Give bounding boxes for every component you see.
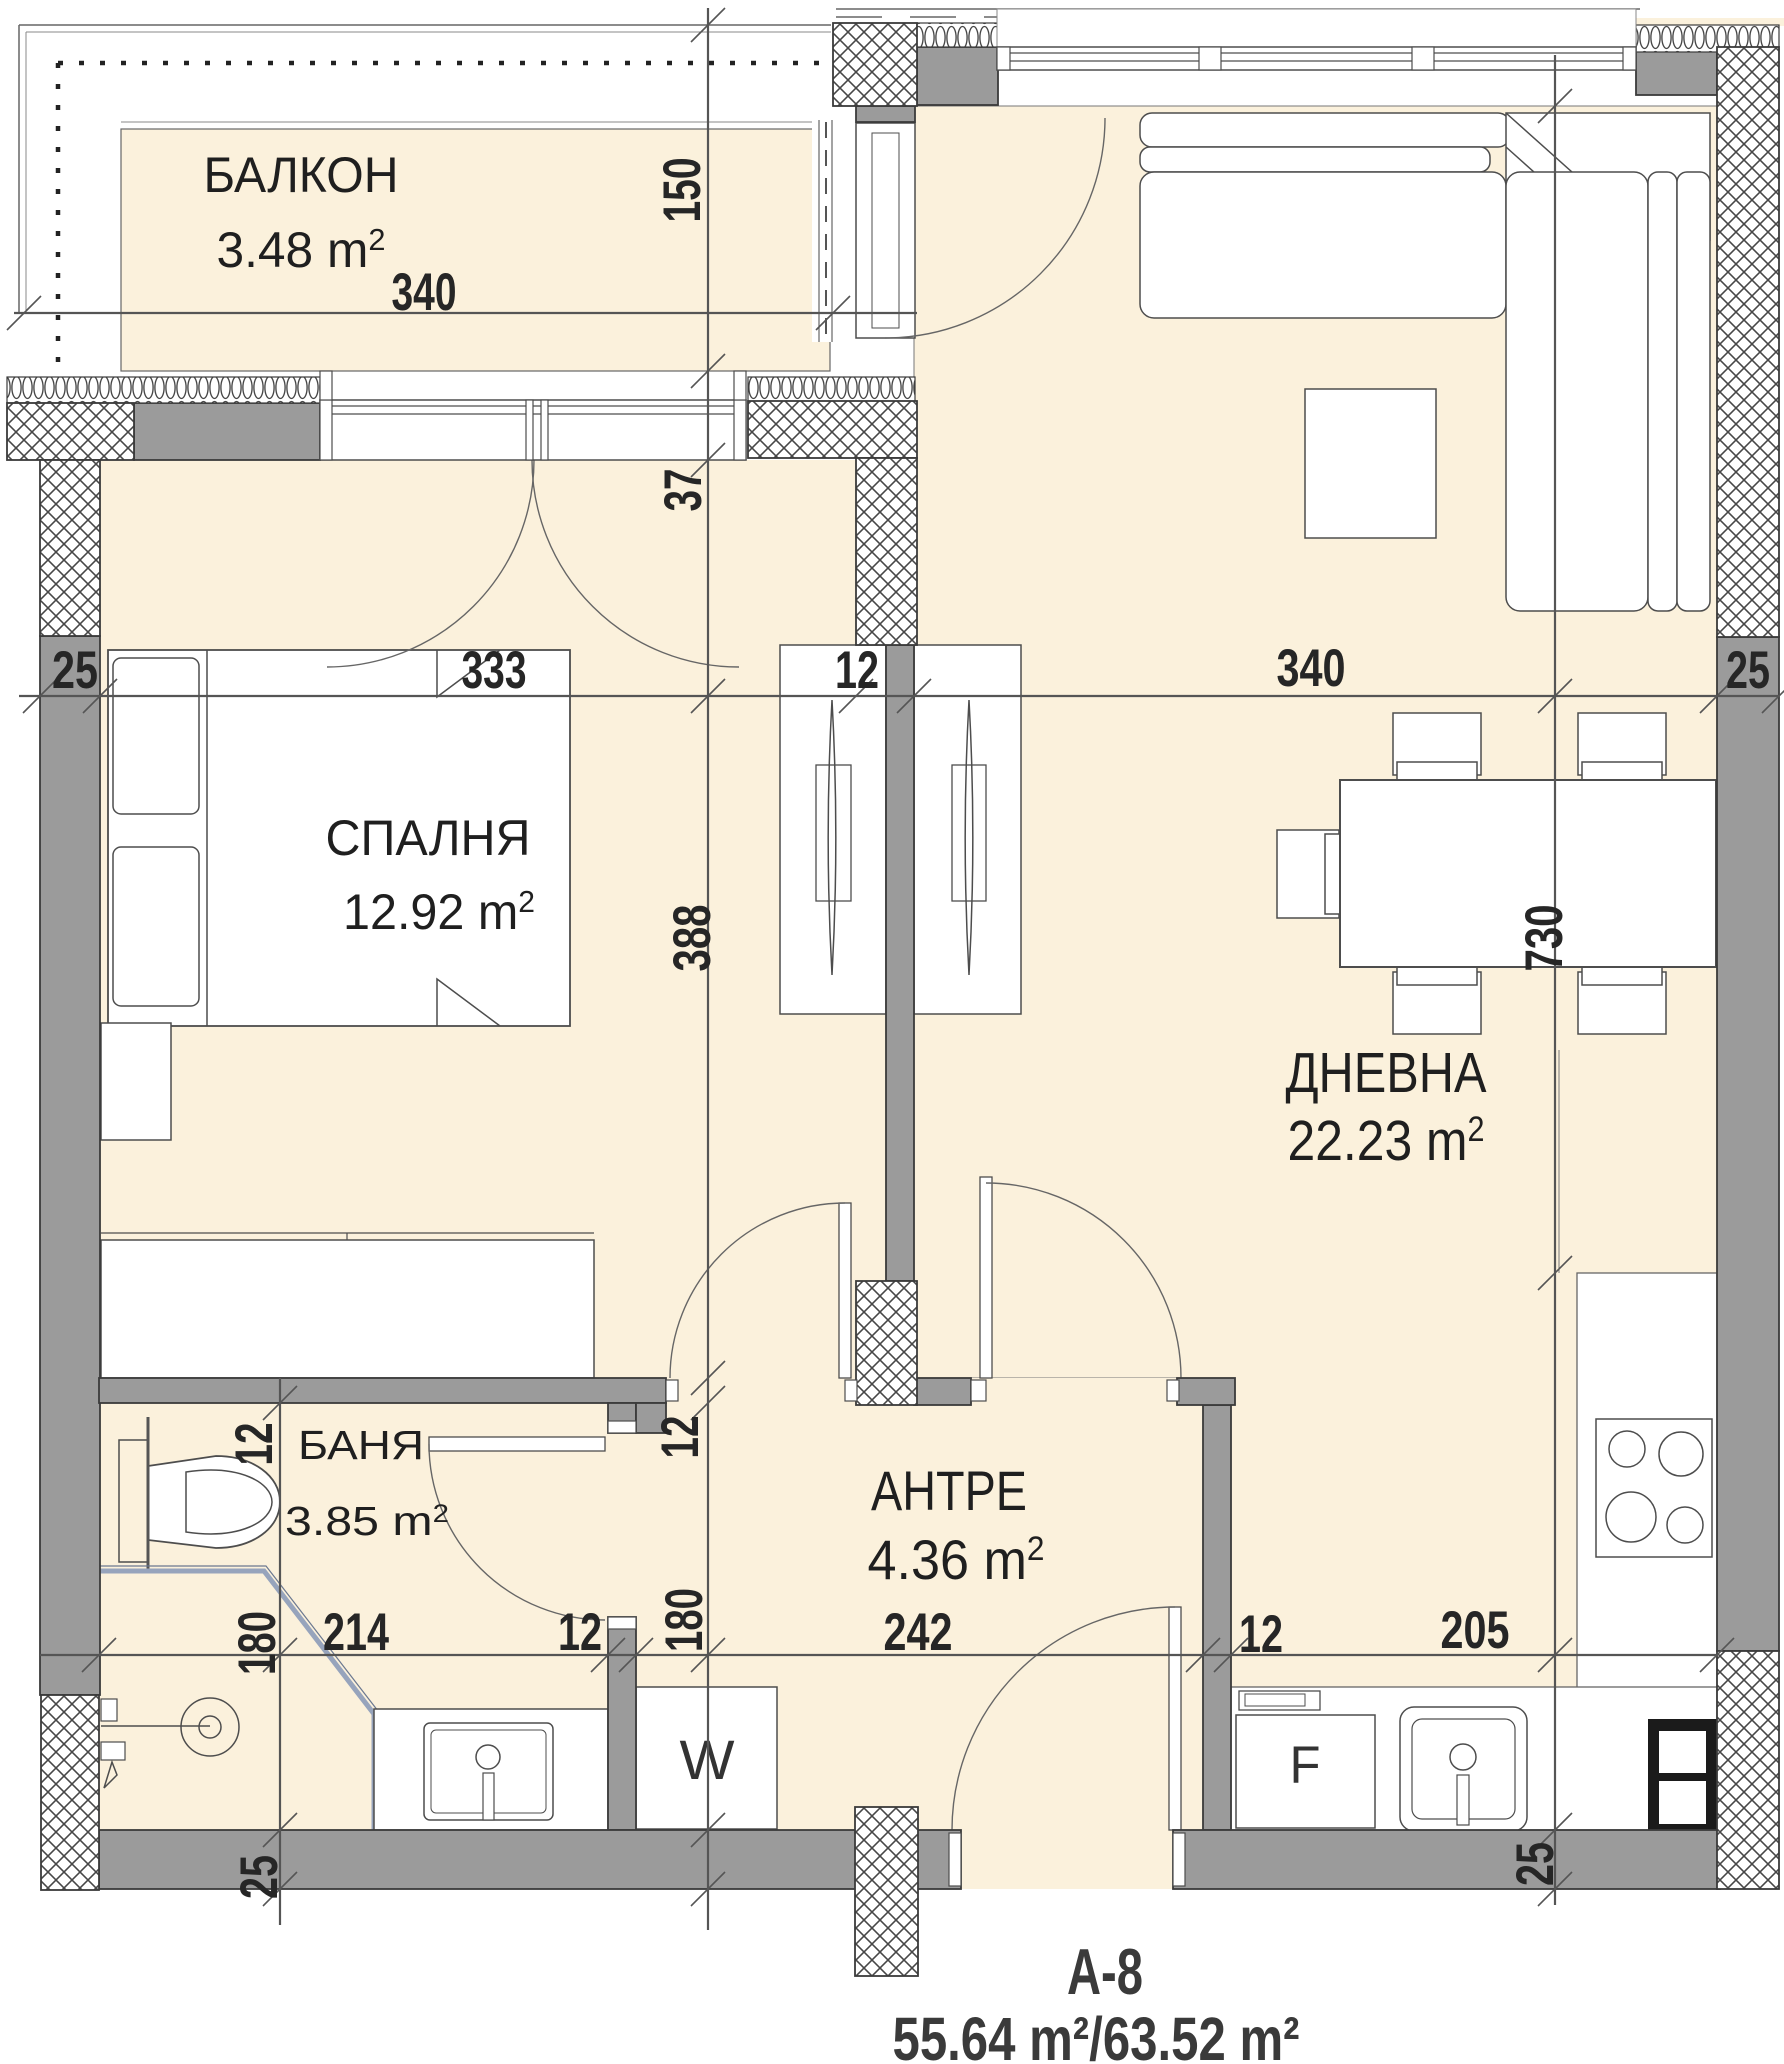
svg-text:БАНЯ: БАНЯ [298, 1422, 424, 1468]
svg-text:F: F [1290, 1736, 1321, 1795]
svg-text:12: 12 [651, 1416, 710, 1459]
svg-text:А-8: А-8 [1067, 1935, 1143, 2008]
svg-text:333: 333 [462, 641, 527, 700]
svg-text:242: 242 [884, 1603, 953, 1662]
svg-text:12: 12 [835, 641, 879, 700]
svg-text:340: 340 [392, 263, 457, 322]
svg-text:180: 180 [228, 1611, 287, 1675]
svg-text:388: 388 [663, 905, 722, 972]
svg-text:25: 25 [230, 1855, 289, 1899]
svg-text:12: 12 [225, 1423, 284, 1466]
svg-text:12: 12 [1239, 1605, 1283, 1664]
svg-text:180: 180 [655, 1588, 714, 1652]
svg-text:4.36 m2: 4.36 m2 [868, 1528, 1045, 1591]
svg-text:12: 12 [558, 1603, 602, 1662]
svg-text:12.92 m2: 12.92 m2 [343, 884, 535, 940]
svg-text:37: 37 [654, 469, 713, 512]
svg-text:150: 150 [653, 158, 712, 223]
svg-text:25: 25 [1726, 641, 1770, 700]
svg-text:АНТРЕ: АНТРЕ [871, 1459, 1027, 1522]
svg-text:25: 25 [52, 641, 98, 700]
svg-text:22.23 m2: 22.23 m2 [1288, 1109, 1485, 1173]
svg-text:БАЛКОН: БАЛКОН [204, 147, 399, 203]
svg-text:55.64 m²/63.52 m²: 55.64 m²/63.52 m² [893, 2005, 1300, 2064]
svg-text:340: 340 [1277, 639, 1346, 698]
svg-text:3.48 m2: 3.48 m2 [217, 222, 386, 278]
svg-text:205: 205 [1441, 1601, 1510, 1660]
svg-text:214: 214 [323, 1603, 389, 1662]
svg-text:3.85 m2: 3.85 m2 [285, 1498, 449, 1544]
svg-text:ДНЕВНА: ДНЕВНА [1286, 1041, 1487, 1105]
svg-text:730: 730 [1515, 905, 1574, 972]
svg-text:СПАЛНЯ: СПАЛНЯ [326, 810, 531, 866]
svg-text:25: 25 [1506, 1842, 1565, 1886]
